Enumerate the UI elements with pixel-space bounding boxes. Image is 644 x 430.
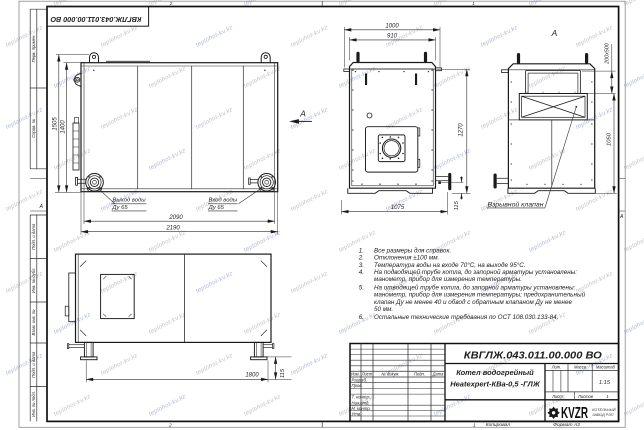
svg-text:Лит.: Лит. <box>551 365 562 370</box>
svg-text:Разраб.: Разраб. <box>352 378 368 383</box>
svg-text:Масштаб: Масштаб <box>596 365 616 370</box>
svg-text:910: 910 <box>387 34 398 40</box>
svg-text:КВГЛЖ.043.011.00.000 ВО: КВГЛЖ.043.011.00.000 ВО <box>50 15 141 24</box>
svg-text:4.: 4. <box>359 269 364 276</box>
svg-text:Инв. № дубл.: Инв. № дубл. <box>31 267 36 293</box>
svg-text:2190: 2190 <box>165 225 180 231</box>
svg-text:Подп. и дата: Подп. и дата <box>31 223 36 250</box>
svg-text:Отклонения ±100 мм.: Отклонения ±100 мм. <box>374 255 439 262</box>
svg-text:А: А <box>551 28 558 38</box>
svg-text:115: 115 <box>280 368 286 378</box>
svg-text:KVZR: KVZR <box>561 405 588 422</box>
svg-text:Температура воды на входе 70°С: Температура воды на входе 70°С, на выход… <box>374 261 526 269</box>
svg-text:Нач.отд.: Нач.отд. <box>352 400 370 405</box>
svg-text:Н. контр.: Н. контр. <box>352 406 371 411</box>
svg-text:1800: 1800 <box>245 372 259 378</box>
svg-text:На отводящей трубе котла, до з: На отводящей трубе котла, до запорной ар… <box>374 284 576 292</box>
svg-text:Изм.: Изм. <box>351 372 360 377</box>
svg-text:Котел водогрейный: Котел водогрейный <box>456 368 534 377</box>
svg-text:Листов: Листов <box>577 394 594 399</box>
svg-text:Все размеры для справок.: Все размеры для справок. <box>374 247 451 255</box>
svg-text:Лист: Лист <box>551 394 563 399</box>
svg-text:Перв. примен.: Перв. примен. <box>31 35 36 63</box>
svg-text:Выход воды: Выход воды <box>112 198 146 204</box>
svg-text:Подп.: Подп. <box>414 372 425 377</box>
svg-text:Утв.: Утв. <box>352 411 362 416</box>
svg-text:Лист: Лист <box>361 372 373 377</box>
svg-text:2.: 2. <box>358 255 364 262</box>
svg-text:На подводящей трубе котла, до: На подводящей трубе котла, до запорной а… <box>374 268 577 276</box>
svg-text:3.: 3. <box>359 262 364 269</box>
svg-text:КОТЕЛЬНЫЙ: КОТЕЛЬНЫЙ <box>592 408 616 412</box>
svg-text:манометр, прибор для измерения: манометр, прибор для измерения температу… <box>374 291 586 299</box>
svg-text:6.: 6. <box>359 314 364 321</box>
svg-text:1270: 1270 <box>459 123 465 137</box>
svg-text:Формат А3: Формат А3 <box>553 422 580 428</box>
svg-text:А: А <box>619 214 624 220</box>
svg-text:А: А <box>39 204 44 210</box>
svg-text:1050: 1050 <box>607 132 613 146</box>
svg-text:5.: 5. <box>359 285 364 292</box>
svg-text:№ докум.: № докум. <box>381 372 399 377</box>
svg-text:1.: 1. <box>359 248 364 255</box>
svg-text:1: 1 <box>606 394 608 399</box>
svg-text:Справ. №: Справ. № <box>31 118 36 137</box>
svg-text:2090: 2090 <box>168 215 183 221</box>
svg-text:Ду 65: Ду 65 <box>208 205 225 211</box>
svg-text:Инв. № подл.: Инв. № подл. <box>31 391 36 417</box>
svg-text:Подп. и дата: Подп. и дата <box>31 351 36 378</box>
svg-text:Взрывной клапан: Взрывной клапан <box>488 200 544 208</box>
svg-text:2: 2 <box>169 1 173 6</box>
svg-text:А: А <box>299 109 306 119</box>
svg-text:манометр, прибор для измерения: манометр, прибор для измерения температу… <box>374 275 522 283</box>
svg-text:2: 2 <box>168 422 172 427</box>
svg-text:клапан Ду не менее 40 и обвод: клапан Ду не менее 40 и обвод с обратным… <box>374 298 572 306</box>
svg-text:Копировал: Копировал <box>486 422 511 428</box>
svg-text:КВГЛЖ.043.011.00.000 ВО: КВГЛЖ.043.011.00.000 ВО <box>464 351 602 362</box>
svg-text:115: 115 <box>454 200 460 210</box>
svg-text:1000: 1000 <box>385 24 399 30</box>
svg-text:1400: 1400 <box>60 120 66 134</box>
svg-text:Остальные технические требован: Остальные технические требования по ОСТ … <box>374 313 558 321</box>
svg-text:Ду 65: Ду 65 <box>111 205 128 211</box>
svg-text:Пров.: Пров. <box>352 383 363 388</box>
svg-text:Дата: Дата <box>432 372 445 377</box>
svg-text:Вход воды: Вход воды <box>209 198 238 204</box>
svg-text:50 мм.: 50 мм. <box>374 306 393 313</box>
svg-text:Т. контр.: Т. контр. <box>352 395 371 400</box>
svg-text:1505: 1505 <box>53 117 59 131</box>
svg-text:1:15: 1:15 <box>599 380 611 386</box>
svg-text:200х500: 200х500 <box>605 43 611 65</box>
svg-text:Взам. инв. №: Взам. инв. № <box>31 309 36 335</box>
svg-text:Heatexpert-КВа-0,5 -ГЛЖ: Heatexpert-КВа-0,5 -ГЛЖ <box>450 379 541 388</box>
svg-text:Масса: Масса <box>574 365 587 370</box>
svg-text:ЗАВОД РЭП: ЗАВОД РЭП <box>592 413 613 417</box>
svg-text:1075: 1075 <box>391 205 405 211</box>
